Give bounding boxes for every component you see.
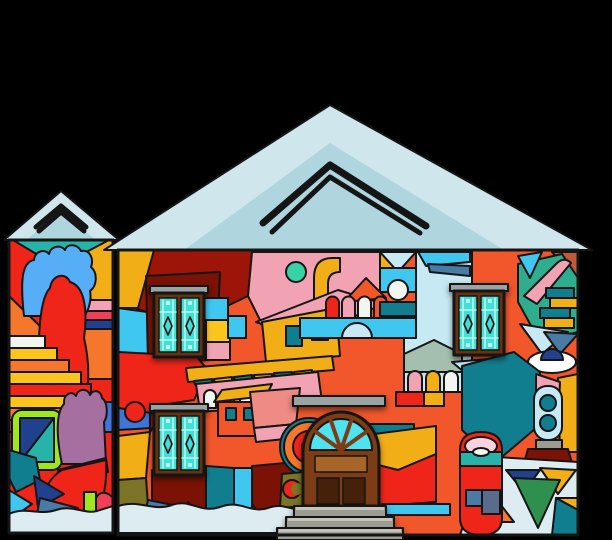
tower-teal-band [380, 302, 416, 316]
mural-brick-pink [206, 342, 230, 360]
illustration-canvas: Colorful abstract mural covering the fac… [0, 0, 612, 540]
stair-motif-teal [546, 288, 574, 298]
mint-dot [286, 262, 306, 282]
arch-column-pink [342, 297, 355, 319]
traffic-light-base [536, 440, 562, 449]
step-highlight [288, 518, 392, 521]
arch-column-red [326, 297, 339, 319]
door-leaf-right [343, 478, 365, 504]
mini-arch-pink [408, 371, 422, 392]
zone-gold-block [424, 392, 444, 406]
mural-brick-cyan-2 [228, 316, 246, 338]
staircase-step [9, 336, 45, 348]
gold-panel [118, 432, 150, 480]
small-house [4, 191, 119, 533]
tower-porthole [388, 280, 408, 300]
mini-arch-white [444, 371, 458, 392]
traffic-light-lamp [540, 415, 556, 431]
fist-shape [58, 390, 107, 464]
cyan-bar [382, 504, 450, 515]
hut-window [226, 408, 236, 420]
stair-motif-gold [550, 298, 578, 308]
arch-column-white [358, 297, 371, 319]
window-upper-left [150, 286, 208, 357]
crescent-cut [291, 483, 303, 495]
staircase-step [9, 348, 57, 360]
red-dot [125, 402, 145, 422]
can-slate-block [482, 490, 500, 514]
window-lower-left [150, 404, 208, 475]
step-highlight [296, 507, 384, 510]
can-highlight [473, 448, 489, 456]
door-leaf-left [317, 478, 339, 504]
snow-band [9, 506, 113, 533]
mural-brick-cyan [204, 298, 228, 320]
stair-motif-gold [544, 318, 574, 328]
mural-houses-svg: Colorful abstract mural covering the fac… [0, 0, 612, 540]
mini-arch-gold [426, 371, 440, 392]
window-upper-right [450, 284, 508, 355]
zone-red-block [396, 392, 424, 406]
staircase-step [9, 360, 69, 372]
door-lintel [293, 396, 385, 406]
door-top-panel [315, 456, 367, 472]
step-highlight [279, 529, 401, 532]
staircase-step [9, 372, 81, 384]
can-steel-block [466, 490, 482, 506]
stair-motif-teal [540, 308, 570, 318]
mural-brick-yellow [206, 320, 230, 342]
traffic-light-lamp [540, 395, 556, 411]
